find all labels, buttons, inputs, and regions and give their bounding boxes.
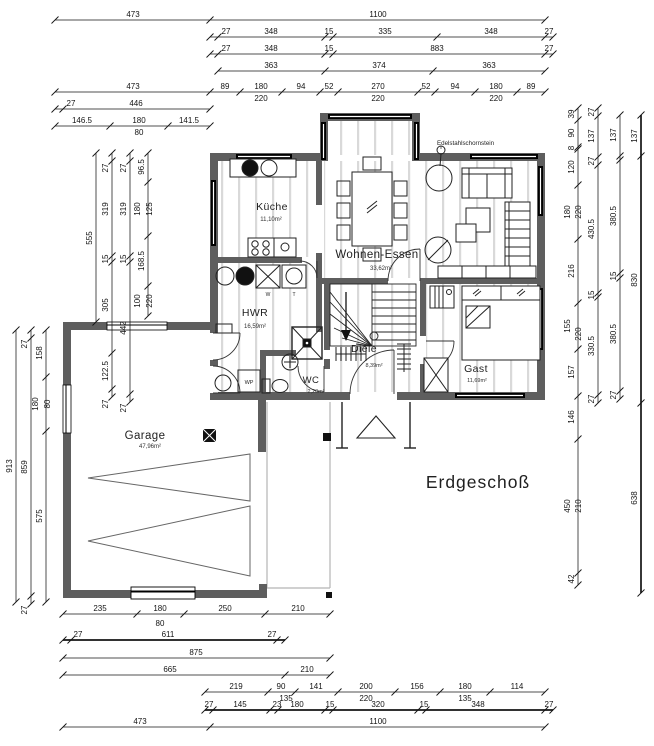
dimension-label: 137 (630, 129, 639, 143)
dimension-label: 180 (132, 116, 146, 125)
room-area-diele: 8,39m² (365, 363, 382, 369)
dimension-label: 611 (162, 630, 175, 639)
dimension-label: 15 (587, 290, 596, 299)
dimension-label: 15 (101, 254, 110, 263)
room-name-wc: WC (303, 375, 320, 386)
dimension-label: 156 (410, 682, 424, 691)
dimension-label: 200 (359, 682, 373, 691)
dimension-label: 89 (221, 82, 230, 91)
floor-plan-drawing: 4731100273481533534827273481588327363374… (0, 0, 654, 746)
dimension-label: 125 (145, 202, 154, 216)
shelf-unit (505, 202, 530, 266)
dimension-label: 348 (264, 44, 278, 53)
dimension-label: 220 (489, 94, 503, 103)
dimension-label: 23 (273, 700, 282, 709)
dimension-label: 363 (482, 61, 496, 70)
dimension-label: 473 (133, 717, 147, 726)
dimension-label: 27 (222, 44, 231, 53)
room-area-hwr: 16,59m² (244, 324, 266, 330)
dimension-label: 15 (326, 700, 335, 709)
room-name-garage: Garage (125, 430, 166, 442)
dimension-label: 15 (325, 44, 334, 53)
sofa (462, 168, 512, 198)
dimension-label: 15 (609, 271, 618, 280)
dimension-label: 180 (153, 604, 167, 613)
sideboard (438, 266, 536, 278)
dimension-label: 320 (371, 700, 385, 709)
dimension-label: 380.5 (609, 323, 618, 344)
dimension-label: 42 (567, 574, 576, 583)
room-name-hwr: HWR (242, 307, 268, 319)
room-area-gast: 11,69m² (467, 378, 487, 384)
dimension-label: 158 (35, 346, 44, 360)
dimension-label: 216 (567, 264, 576, 278)
room-area-wc: 2,20m² (307, 389, 324, 395)
dimension-label: 220 (574, 205, 583, 219)
dimension-label: 348 (471, 700, 485, 709)
dimension-label: 319 (119, 202, 128, 216)
dimension-label: 15 (325, 27, 334, 36)
dimension-label: 27 (119, 403, 128, 412)
dimension-label: 575 (35, 509, 44, 523)
washer-label: W (266, 292, 271, 298)
wardrobe (424, 358, 448, 392)
dimension-label: 180 (254, 82, 268, 91)
dimension-label: 473 (126, 82, 140, 91)
room-name-gast: Gast (464, 363, 488, 375)
dimension-label: 319 (101, 202, 110, 216)
dimension-label: 52 (422, 82, 431, 91)
dimension-label: 883 (430, 44, 444, 53)
dimension-label: 27 (101, 399, 110, 408)
dimension-label: 348 (484, 27, 498, 36)
dimension-label: 180 (133, 202, 142, 216)
dryer-label: T (292, 292, 295, 298)
dimension-label: 155 (563, 319, 572, 333)
dimension-label: 27 (609, 390, 618, 399)
dimension-label: 270 (371, 82, 385, 91)
dimension-label: 27 (119, 163, 128, 172)
dimension-label: 114 (511, 682, 524, 691)
dimension-label: 220 (574, 327, 583, 341)
dimension-label: 363 (264, 61, 278, 70)
dimension-label: 145 (233, 700, 247, 709)
dimension-label: 89 (527, 82, 536, 91)
dimension-label: 305 (101, 298, 110, 312)
dimension-label: 374 (372, 61, 386, 70)
site-lines (267, 402, 330, 588)
dimension-label: 446 (129, 99, 143, 108)
dimension-label: 250 (218, 604, 232, 613)
shoe-rack (430, 286, 454, 308)
dimension-label: 141 (309, 682, 323, 691)
dimension-label: 180 (563, 205, 572, 219)
kitchen-stove (248, 238, 296, 257)
dimension-label: 96.5 (137, 159, 146, 175)
dimension-label: 120 (567, 160, 576, 174)
garage-door (131, 587, 195, 599)
dimension-label: 27 (205, 700, 214, 709)
kitchen-counter-sink (230, 159, 296, 177)
dimension-label: 638 (630, 491, 639, 505)
dimension-label: 80 (135, 128, 144, 137)
dimension-label: 27 (222, 27, 231, 36)
dimension-label: 665 (163, 665, 177, 674)
dimension-label: 146 (567, 410, 576, 424)
dimension-label: 210 (574, 499, 583, 513)
dimension-label: 220 (145, 294, 154, 308)
dimension-label: 15 (119, 254, 128, 263)
entrance-canopy (336, 402, 416, 448)
dimension-label: 27 (545, 44, 554, 53)
dimension-label: 330.5 (587, 335, 596, 356)
dimension-label: 210 (291, 604, 305, 613)
dimension-label: 94 (451, 82, 460, 91)
dimension-label: 875 (189, 648, 203, 657)
room-name-wohnen: Wohnen-Essen (335, 249, 418, 261)
dimension-label: 80 (43, 399, 52, 408)
dimension-label: 180 (31, 397, 40, 411)
dimension-label: 380.5 (609, 205, 618, 226)
dimension-label: 219 (229, 682, 243, 691)
chimney-label: Edelstahlschornstein (437, 140, 495, 147)
dimension-label: 27 (587, 156, 596, 165)
dimension-label: 210 (300, 665, 314, 674)
dimension-label: 168.5 (137, 250, 146, 271)
dimension-label: 830 (630, 273, 639, 287)
dimension-label: 137 (609, 128, 618, 142)
dimension-label: 8 (567, 145, 576, 150)
dimension-label: 39 (567, 109, 576, 118)
dimension-label: 1100 (369, 10, 387, 19)
dimension-label: 27 (545, 27, 554, 36)
dimension-label: 27 (545, 700, 554, 709)
dimension-label: 348 (264, 27, 278, 36)
page-title: Erdgeschoß (426, 472, 530, 492)
dimension-label: 80 (156, 619, 165, 628)
dimension-label: 473 (126, 10, 140, 19)
dimension-label: 141.5 (179, 116, 200, 125)
dimension-label: 555 (85, 231, 94, 245)
dimension-label: 430.5 (587, 218, 596, 239)
room-area-garage: 47,96m² (139, 444, 161, 450)
bed (462, 286, 540, 360)
dimension-label: 450 (563, 499, 572, 513)
garage-openings (63, 322, 195, 599)
dimension-label: 27 (74, 630, 83, 639)
dimension-label: 137 (587, 129, 596, 143)
dimension-label: 122.5 (101, 360, 110, 381)
heat-pump-label: WP (245, 380, 254, 386)
dimension-label: 27 (587, 394, 596, 403)
dimension-label: 220 (254, 94, 268, 103)
garage-floor-triangles (88, 454, 250, 576)
dimension-label: 913 (5, 459, 14, 473)
dimension-label: 94 (297, 82, 306, 91)
dimension-label: 859 (20, 460, 29, 474)
dimension-label: 235 (93, 604, 107, 613)
dimension-label: 335 (378, 27, 392, 36)
room-name-diele: Diele (351, 343, 377, 355)
floor-plan-page: 4731100273481533534827273481588327363374… (0, 0, 654, 746)
dimension-label: 146.5 (72, 116, 93, 125)
dimension-label: 220 (371, 94, 385, 103)
dimension-label: 52 (325, 82, 334, 91)
dimension-label: 90 (567, 128, 576, 137)
dimension-label: 442 (119, 321, 128, 335)
dimension-label: 100 (133, 294, 142, 308)
dimension-label: 180 (290, 700, 304, 709)
dimension-label: 27 (101, 163, 110, 172)
room-area-wohnen: 33,62m² (370, 266, 392, 272)
dimension-label: 27 (587, 107, 596, 116)
dimension-label: 90 (277, 682, 286, 691)
dimension-label: 1100 (369, 717, 387, 726)
dimension-label: 27 (67, 99, 76, 108)
room-area-kueche: 11,10m² (260, 217, 282, 223)
dimension-label: 27 (268, 630, 277, 639)
room-name-kueche: Küche (256, 201, 288, 213)
dimension-label: 27 (20, 339, 29, 348)
dimension-label: 180 (458, 682, 472, 691)
dimension-label: 27 (20, 605, 29, 614)
dimension-label: 180 (489, 82, 503, 91)
dimension-label: 135 (458, 694, 472, 703)
dimension-label: 157 (567, 365, 576, 379)
dimension-label: 15 (420, 700, 429, 709)
